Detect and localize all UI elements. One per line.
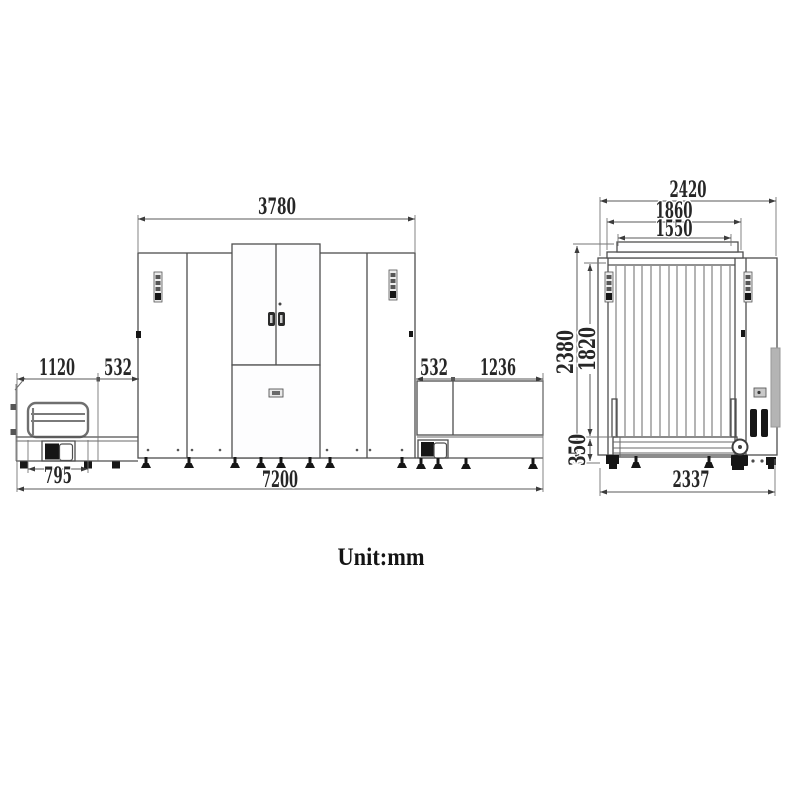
dim-tunnel-height: 1820 xyxy=(575,327,601,371)
brand-badge-end-right xyxy=(744,272,752,302)
xray-scanner-drawing: 3780 1120 532 532 1236 795 7200 xyxy=(0,0,800,800)
power-plate xyxy=(754,388,766,397)
service-column xyxy=(605,272,780,463)
brand-badge-left xyxy=(154,272,162,302)
exit-monitor xyxy=(418,440,448,458)
dim-exit-gap: 532 xyxy=(420,355,448,381)
dim-entry-gap: 532 xyxy=(104,355,132,381)
dim-exit-overhang: 1236 xyxy=(480,355,516,381)
side-handle xyxy=(771,348,780,427)
brand-badge-end-left xyxy=(605,272,613,302)
dim-entry-table-width: 795 xyxy=(44,463,72,489)
vent-slot xyxy=(750,409,757,437)
tunnel-curtain-strips xyxy=(616,266,730,436)
keyhole-dot xyxy=(279,303,282,306)
side-view: 3780 1120 532 532 1236 795 7200 xyxy=(11,194,544,493)
entry-monitor xyxy=(42,441,75,461)
technical-drawing-page: 3780 1120 532 532 1236 795 7200 xyxy=(0,0,800,800)
roller-pedestal xyxy=(731,455,748,466)
dim-base-width: 2337 xyxy=(673,467,710,493)
end-conveyor xyxy=(612,399,748,466)
leveling-feet xyxy=(141,457,538,469)
control-cabinet xyxy=(232,244,320,458)
unit-caption: Unit:mm xyxy=(338,544,425,571)
dim-entry-overhang: 1120 xyxy=(39,355,75,381)
edge-sensor-right xyxy=(409,331,413,337)
dim-belt-height: 350 xyxy=(565,434,591,466)
brand-badge-right xyxy=(389,270,397,300)
vent-slot xyxy=(761,409,768,437)
name-plate xyxy=(269,389,283,397)
hinge-block xyxy=(741,330,745,337)
dim-body-width: 3780 xyxy=(258,194,296,220)
exit-conveyor xyxy=(415,381,543,458)
edge-sensor-left xyxy=(136,331,141,338)
dim-total-length: 7200 xyxy=(262,467,298,493)
end-view: 2420 1860 1550 2380 1820 350 2337 xyxy=(553,177,780,496)
entry-table xyxy=(11,378,139,469)
dim-tunnel-width: 1550 xyxy=(656,216,693,242)
